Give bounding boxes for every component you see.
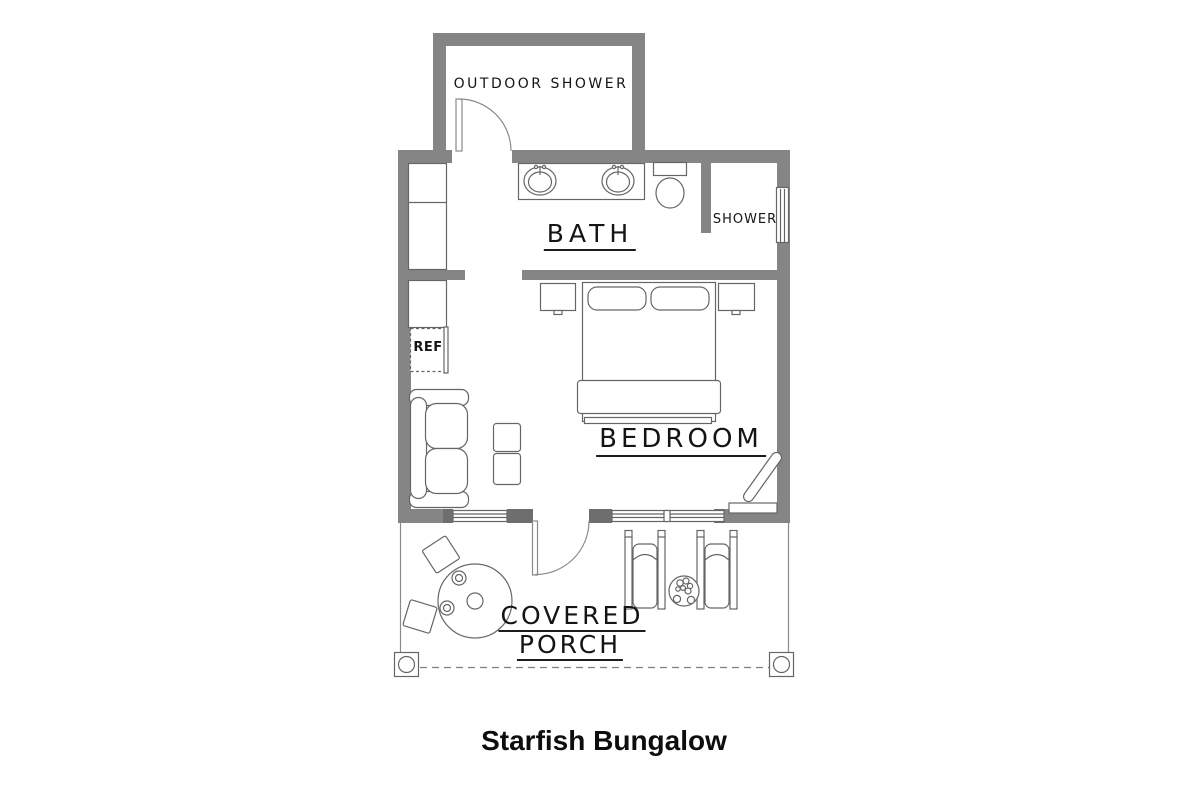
bedroom-furniture [410,283,784,508]
floor-plan-page: OUTDOOR SHOWER BATH SHOWER REF BEDROOM C… [0,0,1200,800]
room-label-porch: PORCH [517,632,623,661]
porch-chair-1 [422,536,460,574]
door-porch-swing-arc [535,521,589,575]
wall-divider-left [398,270,465,280]
door-outdoor-shower-swing-arc [459,99,511,151]
counter-kitchenette [409,281,447,328]
wall-divider-right [522,270,790,280]
sofa [410,390,469,508]
counter-bath [409,164,447,270]
footboard [585,418,712,424]
wall-shower-partition [701,163,711,233]
umbrella-pole [467,593,483,609]
room-label-covered: COVERED [498,603,645,632]
window-porch-left [453,511,507,522]
room-label-outdoor-shower: OUTDOOR SHOWER [454,77,629,92]
place-setting-2 [440,601,454,615]
room-label-bedroom: BEDROOM [596,426,766,457]
plant-side-table [669,576,699,606]
floor-plan-drawing [0,0,1200,800]
sofa-back [411,398,427,499]
bedroom-corner-ledge [729,503,777,513]
side-table-2 [494,454,521,485]
pillow-left [588,287,646,310]
place-setting-1 [452,571,466,585]
wall-enclosure-right [632,33,645,163]
porch-chair-2 [403,599,438,633]
toilet [654,163,687,209]
porch-post-left [395,653,419,677]
wall-bottom-b [507,509,533,523]
side-table-1 [494,424,521,452]
page-title: Starfish Bungalow [481,725,727,757]
window-porch-right-divider [664,511,670,522]
window-shower [777,188,789,243]
wall-enclosure-left [433,33,446,163]
refrigerator-door [444,327,448,373]
room-label-bath: BATH [544,221,636,251]
wall-top-right-segment [512,150,790,163]
lounge-chair-right [697,531,737,610]
bed [578,283,721,424]
wall-bottom-jamb1 [443,509,453,523]
wall-bottom-c [589,509,612,523]
lounge-chair-left [625,531,665,610]
blanket [578,381,721,414]
porch-dining-set [403,536,512,638]
nightstand-right [719,284,755,315]
pillow-right [651,287,709,310]
porch-post-right [770,653,794,677]
door-porch-leaf [533,521,538,575]
sofa-cushion-2 [426,449,468,494]
door-outdoor-shower-leaf [456,99,462,151]
nightstand-left [541,284,576,315]
sofa-cushion-1 [426,404,468,449]
wall-enclosure-top [433,33,645,46]
fixture-label-refrigerator: REF [413,341,442,355]
room-label-shower: SHOWER [713,213,777,227]
